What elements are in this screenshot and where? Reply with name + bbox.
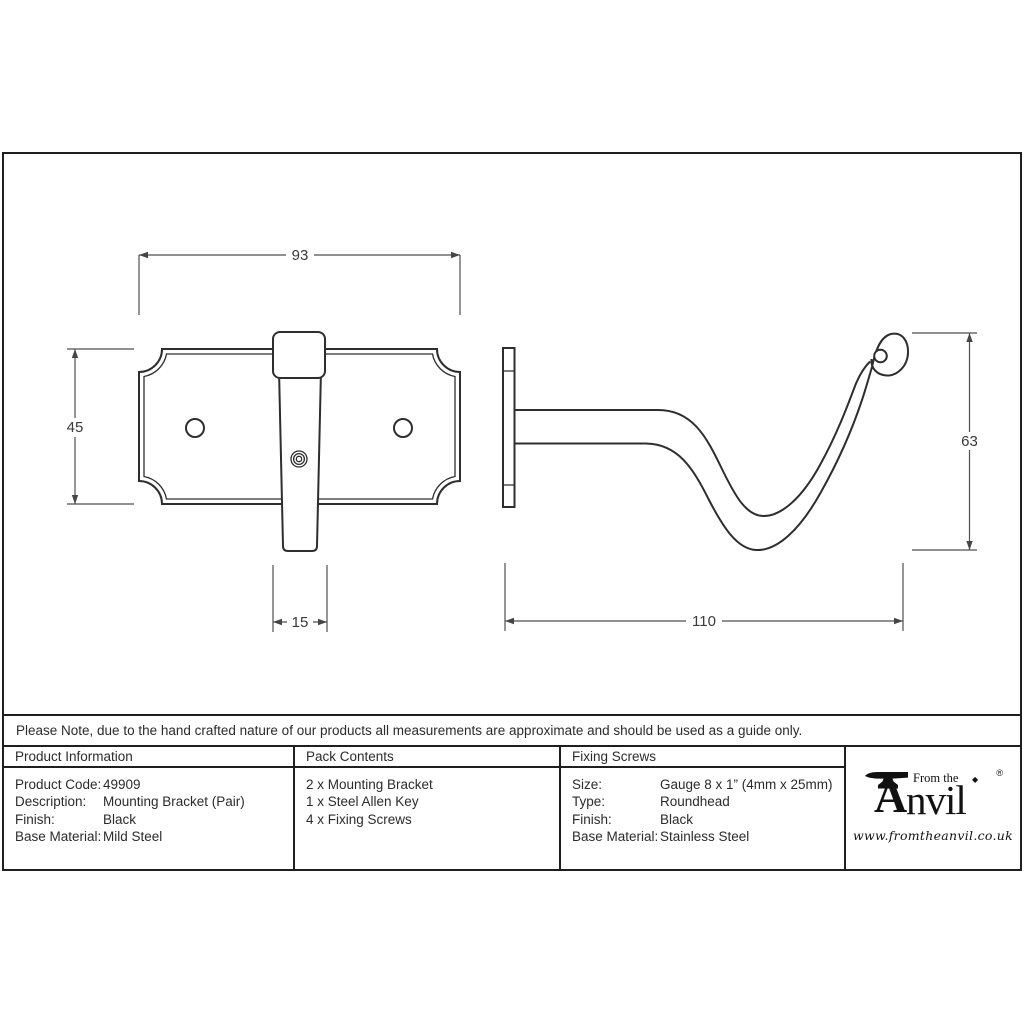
pack-contents-column: Pack Contents 2 x Mounting Bracket 1 x S…: [295, 747, 561, 869]
fixing-screws-column: Fixing Screws Size:Gauge 8 x 1” (4mm x 2…: [561, 747, 846, 869]
list-item: 2 x Mounting Bracket: [306, 776, 559, 793]
pack-contents-header: Pack Contents: [295, 747, 559, 768]
logo-letter-a: A: [874, 774, 907, 820]
pack-contents-body: 2 x Mounting Bracket 1 x Steel Allen Key…: [295, 768, 559, 828]
table-row: Product Code:49909: [15, 776, 293, 793]
anvil-logo-mark: A nvil From the ◆ ®: [869, 770, 997, 826]
spec-table: Product Information Product Code:49909 D…: [4, 747, 1020, 869]
table-row: Size:Gauge 8 x 1” (4mm x 25mm): [572, 776, 844, 793]
diamond-icon: ◆: [972, 775, 978, 784]
table-row: Type:Roundhead: [572, 793, 844, 810]
logo-website: www.fromtheanvil.co.uk: [853, 828, 1013, 843]
list-item: 1 x Steel Allen Key: [306, 793, 559, 810]
registered-trademark-icon: ®: [996, 768, 1003, 778]
fixing-screws-body: Size:Gauge 8 x 1” (4mm x 25mm) Type:Roun…: [561, 768, 844, 845]
table-row: Finish:Black: [15, 811, 293, 828]
measurement-note-text: Please Note, due to the hand crafted nat…: [16, 723, 802, 738]
product-information-column: Product Information Product Code:49909 D…: [4, 747, 295, 869]
table-row: Finish:Black: [572, 811, 844, 828]
from-the-anvil-logo: A nvil From the ◆ ® www.fromtheanvil.co.…: [853, 747, 1013, 869]
logo-letters-nvil: nvil: [906, 780, 966, 821]
table-row: Base Material:Stainless Steel: [572, 828, 844, 845]
table-row: Description:Mounting Bracket (Pair): [15, 793, 293, 810]
product-information-header: Product Information: [4, 747, 293, 768]
measurement-note-row: Please Note, due to the hand crafted nat…: [4, 714, 1020, 747]
table-row: Base Material:Mild Steel: [15, 828, 293, 845]
fixing-screws-header: Fixing Screws: [561, 747, 844, 768]
product-information-body: Product Code:49909 Description:Mounting …: [4, 768, 293, 845]
brand-column: A nvil From the ◆ ® www.fromtheanvil.co.…: [846, 747, 1020, 869]
list-item: 4 x Fixing Screws: [306, 811, 559, 828]
logo-from-the-text: From the: [913, 771, 958, 786]
drawing-sheet-frame: Please Note, due to the hand crafted nat…: [2, 152, 1022, 871]
